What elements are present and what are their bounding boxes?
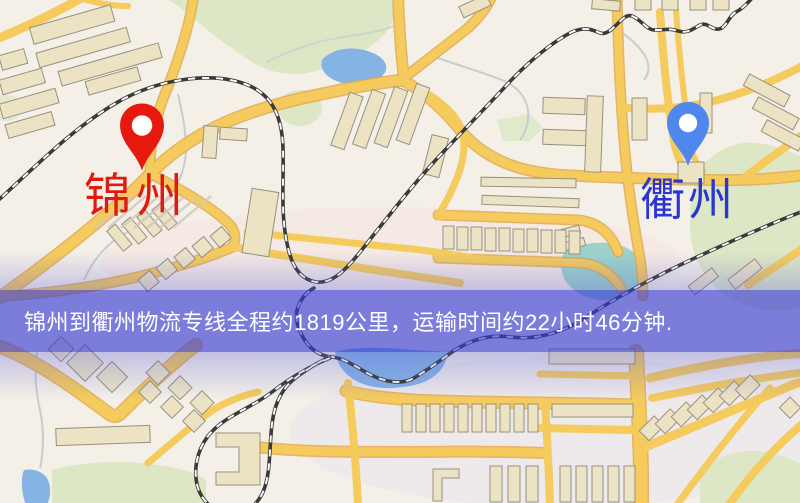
logistics-route-map: 锦州 衢州 锦州到衢州物流专线全程约1819公里，运输时间约22小时46分钟. [0, 0, 800, 503]
banner-halo-bottom [0, 352, 800, 400]
origin-city-label: 锦州 [84, 174, 188, 221]
banner-halo-top [0, 252, 800, 290]
blue-location-pin-icon [666, 101, 710, 167]
destination-city-label: 衢州 [640, 178, 736, 223]
route-info-text: 锦州到衢州物流专线全程约1819公里，运输时间约22小时46分钟. [0, 305, 673, 337]
map-background [0, 0, 800, 503]
route-info-banner: 锦州到衢州物流专线全程约1819公里，运输时间约22小时46分钟. [0, 290, 800, 352]
red-location-pin-icon [119, 102, 165, 172]
